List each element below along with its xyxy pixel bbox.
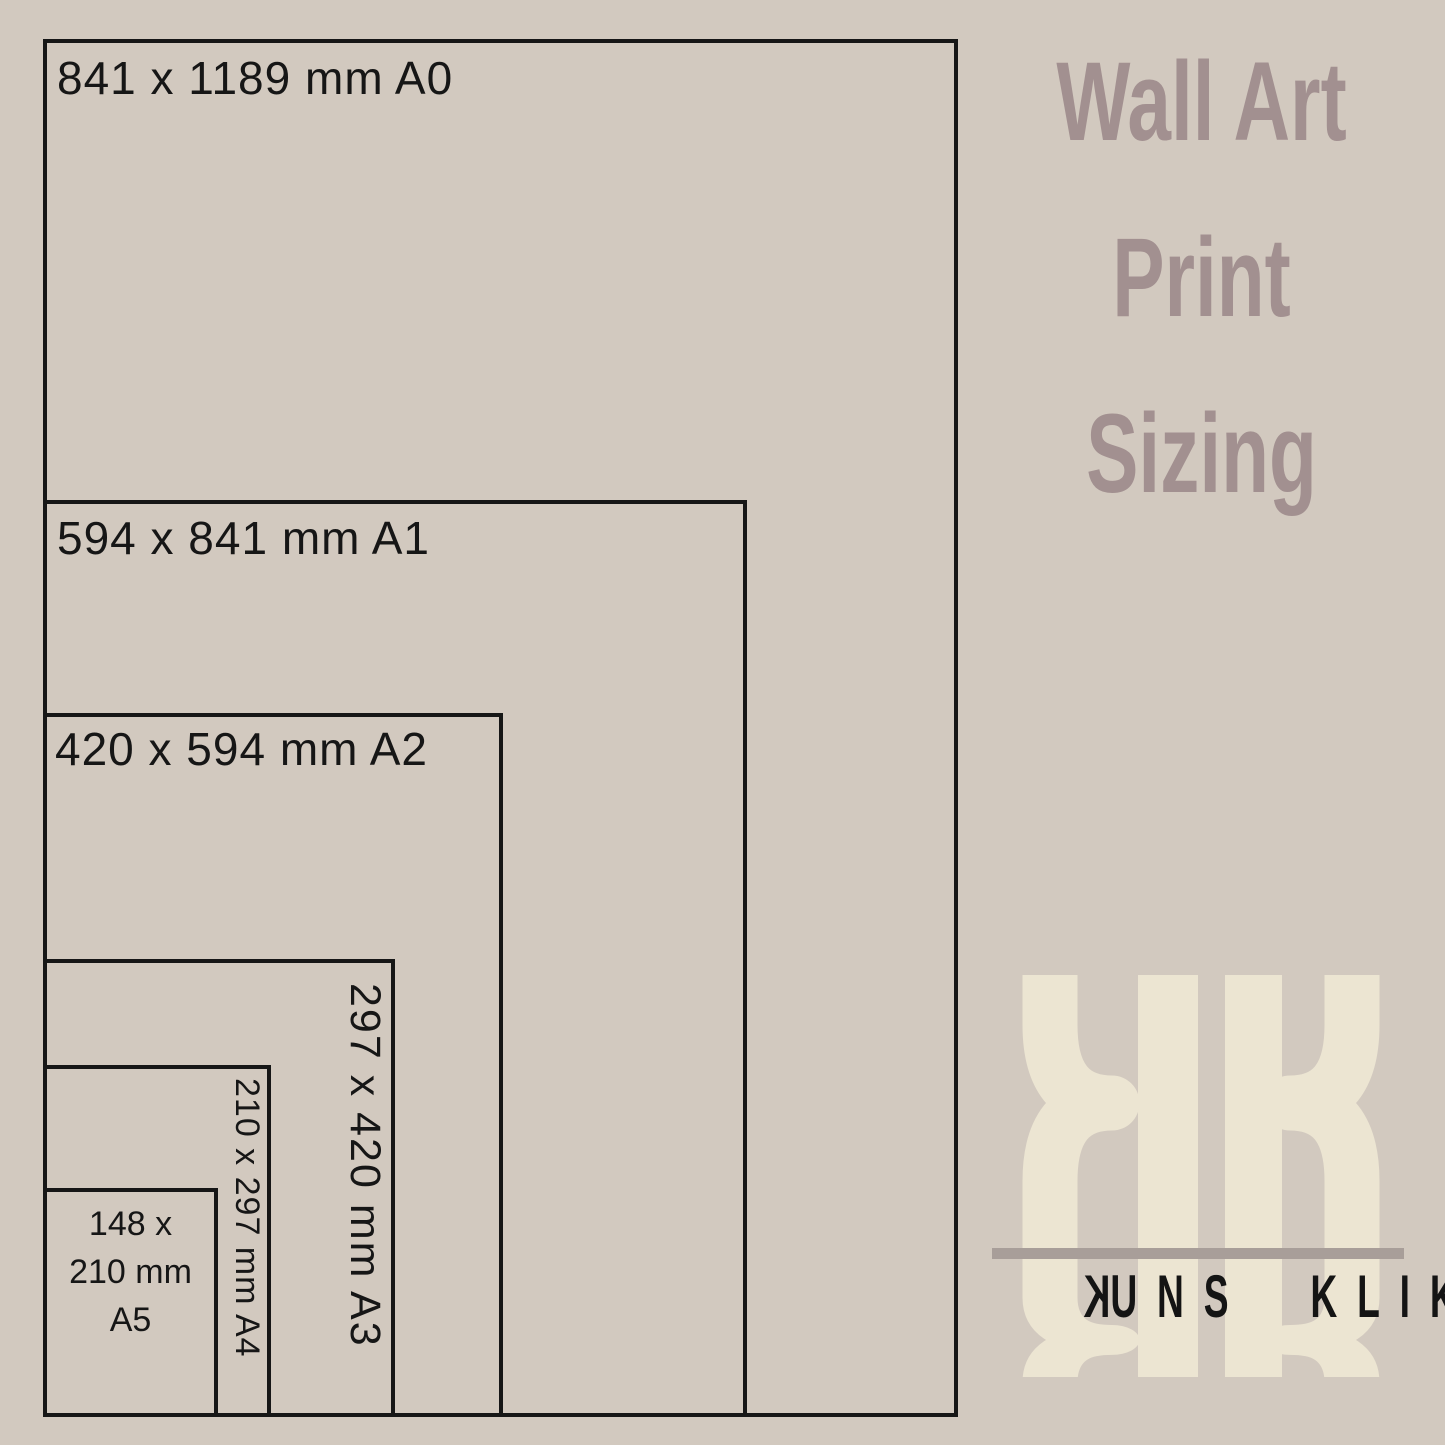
logo-word-kuns: KUNS: [1064, 1263, 1249, 1330]
kk-monogram: [1020, 975, 1382, 1252]
size-label-a1: 594 x 841 mm A1: [57, 511, 430, 565]
size-label-a5-line2: 210 mm: [69, 1248, 192, 1296]
size-label-a0: 841 x 1189 mm A0: [57, 51, 453, 105]
size-label-a2: 420 x 594 mm A2: [55, 722, 428, 776]
logo-divider-bar: [992, 1248, 1404, 1259]
logo-word-klik: KLIK: [1310, 1263, 1445, 1330]
logo-word-kuns-rest: UNS: [1110, 1263, 1248, 1330]
size-box-a5: 148 x 210 mm A5: [43, 1188, 218, 1417]
size-label-a5-line1: 148 x: [89, 1200, 172, 1248]
logo-wordmark: KUNSKLIK: [1064, 1262, 1337, 1331]
size-label-a5-line3: A5: [110, 1296, 152, 1344]
logo-mirrored-k: K: [1064, 1262, 1111, 1331]
size-label-a4: 210 x 297 mm A4: [230, 1078, 264, 1358]
page-title: Wall Art Print Sizing: [958, 14, 1445, 542]
size-label-a5: 148 x 210 mm A5: [47, 1192, 214, 1413]
page-title-line2: Print: [1031, 190, 1372, 366]
wall-art-print-sizing-infographic: 841 x 1189 mm A0 594 x 841 mm A1 420 x 5…: [0, 0, 1445, 1445]
size-label-a3: 297 x 420 mm A3: [343, 983, 386, 1348]
page-title-line3: Sizing: [1031, 366, 1372, 542]
kk-monogram-glyphs: [1020, 975, 1382, 1252]
page-title-line1: Wall Art: [1031, 14, 1372, 190]
